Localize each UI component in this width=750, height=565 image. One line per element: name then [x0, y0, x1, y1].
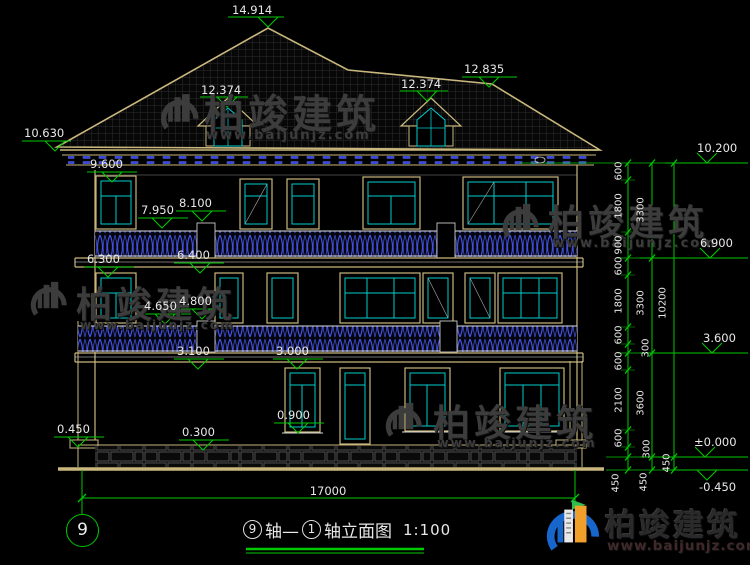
dimension-label: 3300	[636, 197, 647, 222]
overall-width-dimension: 17000	[300, 484, 356, 498]
dimension-label: 600	[614, 325, 625, 344]
title-mid-text: 轴—	[265, 517, 299, 542]
elevation-label: 6.400	[177, 249, 210, 261]
axis-bubble-9: 9	[66, 514, 99, 547]
dimension-label: 900	[614, 235, 625, 254]
brand-logo: 柏竣建筑 www.baijunjz.com	[543, 496, 750, 562]
dimension-label: 10200	[658, 287, 669, 319]
elevation-label: 6.300	[87, 253, 120, 265]
watermark-url: www.baijunjz.com	[80, 318, 235, 332]
elevation-label: 7.950	[141, 204, 174, 216]
dimension-label: 450	[611, 473, 622, 492]
elevation-label: 4.800	[179, 295, 212, 307]
elevation-label: 10.200	[697, 142, 737, 154]
watermark-url: www.baijunjz.com	[437, 435, 597, 450]
watermark-logo-icon	[498, 192, 542, 248]
elevation-label: 6.900	[700, 237, 733, 249]
elevation-label: 0.450	[57, 423, 90, 435]
dimension-label: 1800	[614, 288, 625, 313]
title-suffix-text: 轴立面图	[324, 517, 392, 542]
brand-logo-url: www.baijunjz.com	[607, 538, 750, 554]
title-scale: 1:100	[403, 521, 451, 539]
elevation-label: 4.650	[144, 300, 177, 312]
title-axis-start-bubble: 9	[243, 520, 262, 539]
elevation-label: -0.450	[699, 481, 736, 493]
dimension-label: 450	[639, 472, 650, 491]
elevation-label-peak: 14.914	[232, 4, 272, 16]
dimension-label: 600	[614, 256, 625, 275]
watermark-url: www.baijunjz.com	[206, 128, 371, 143]
title-axis-end-bubble: 1	[302, 520, 321, 539]
dimension-label: 600	[614, 351, 625, 370]
dimension-label: 1800	[614, 193, 625, 218]
elevation-label-dormer-right: 12.374	[401, 78, 441, 90]
watermark: 柏竣建筑 www.baijunjz.com	[156, 82, 416, 144]
dimension-label: 300	[642, 439, 653, 458]
drawing-title: 9轴—1轴立面图1:100	[243, 517, 451, 542]
elevation-label: 9.600	[90, 158, 123, 170]
dimension-label: 600	[614, 161, 625, 180]
dimension-label: 600	[614, 428, 625, 447]
watermark-logo-icon	[26, 270, 70, 326]
elevation-label: ±0.000	[694, 436, 737, 448]
eave-band	[60, 150, 598, 175]
elevation-label: 3.600	[703, 332, 736, 344]
watermark-logo-icon	[381, 391, 425, 447]
dimension-label: 450	[662, 453, 673, 472]
dimension-label: 300	[641, 338, 652, 357]
dimension-label: 3300	[636, 290, 647, 315]
cad-elevation-drawing: 柏竣建筑 www.baijunjz.com 柏竣建筑 www.baijunjz.…	[0, 0, 750, 565]
watermark-url: www.baijunjz.com	[552, 236, 717, 251]
elevation-label-dormer-left: 12.374	[201, 84, 241, 96]
brand-logo-icon	[543, 496, 601, 556]
elevation-label: 3.100	[177, 345, 210, 357]
watermark-logo-icon	[156, 82, 202, 140]
elevation-label: 3.000	[276, 345, 309, 357]
elevation-label: 0.300	[182, 426, 215, 438]
elevation-label: 0.900	[277, 409, 310, 421]
elevation-label-ridge-right: 12.835	[464, 63, 504, 75]
elevation-label: 10.630	[24, 127, 64, 139]
elevation-label: 8.100	[179, 197, 212, 209]
dimension-label: 3600	[636, 390, 647, 415]
dimension-label: 2100	[614, 387, 625, 412]
